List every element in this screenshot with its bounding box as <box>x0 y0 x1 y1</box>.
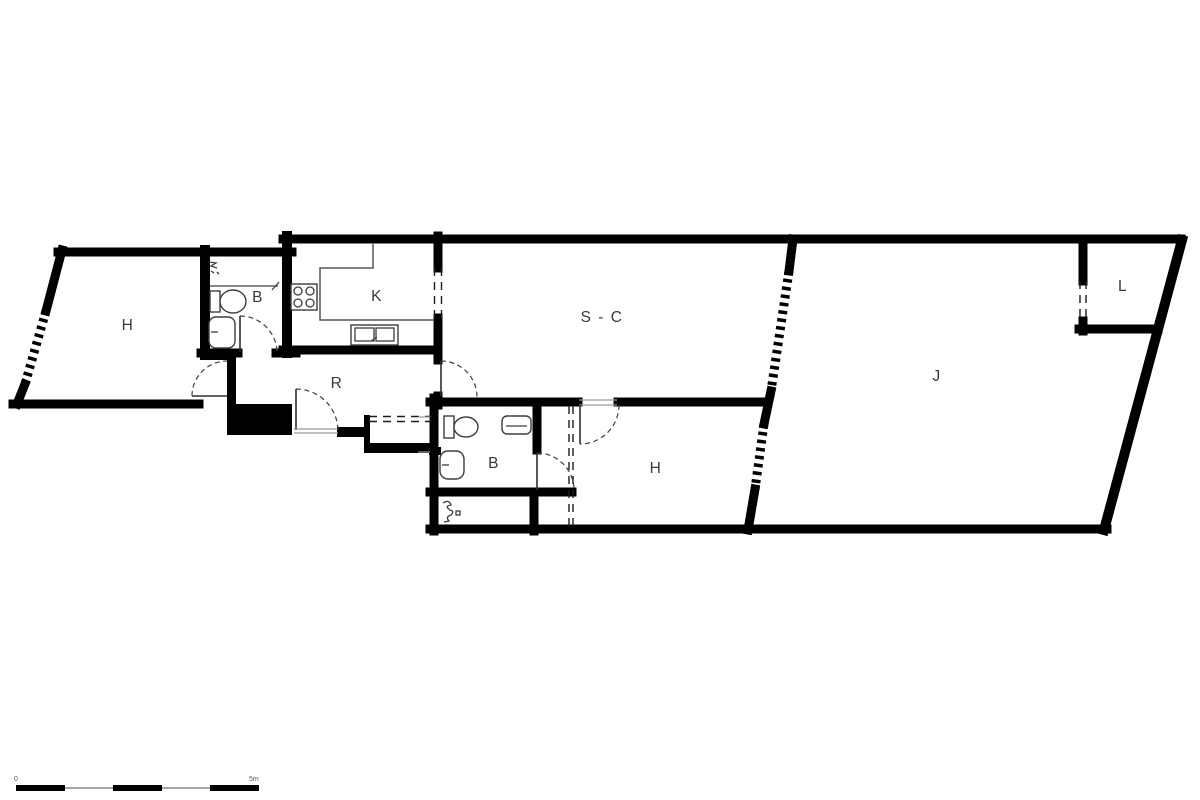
boiler-icon <box>443 501 453 522</box>
room-label-bathroom-lower: B <box>488 455 500 472</box>
room-label-hall-upper-left: H <box>122 317 135 334</box>
toilet-icon <box>210 291 220 312</box>
room-label-garden: J <box>932 368 941 385</box>
floor-plan: HBKRS - CBHJL 0 5m <box>0 0 1200 800</box>
room-labels: HBKRS - CBHJL <box>122 278 1128 477</box>
toilet-icon <box>444 416 454 438</box>
room-label-bathroom-upper: B <box>252 289 264 306</box>
fixtures <box>209 244 531 522</box>
water-heater-icon <box>209 262 219 274</box>
room-label-living-room: S - C <box>581 309 624 326</box>
shelf-icon <box>502 416 531 434</box>
kitchen-counter <box>320 244 434 320</box>
floor-plan-drawing: HBKRS - CBHJL 0 5m <box>0 0 1200 800</box>
scale-bar: 0 5m <box>14 776 259 791</box>
openings <box>369 268 1086 526</box>
room-label-hall-lower: H <box>650 460 663 477</box>
room-label-corridor: R <box>331 375 344 392</box>
scale-end-label: 5m <box>249 776 259 783</box>
room-label-kitchen: K <box>371 288 383 305</box>
room-label-storage: L <box>1118 278 1128 295</box>
scale-start-label: 0 <box>14 776 18 783</box>
walls <box>13 236 1182 531</box>
